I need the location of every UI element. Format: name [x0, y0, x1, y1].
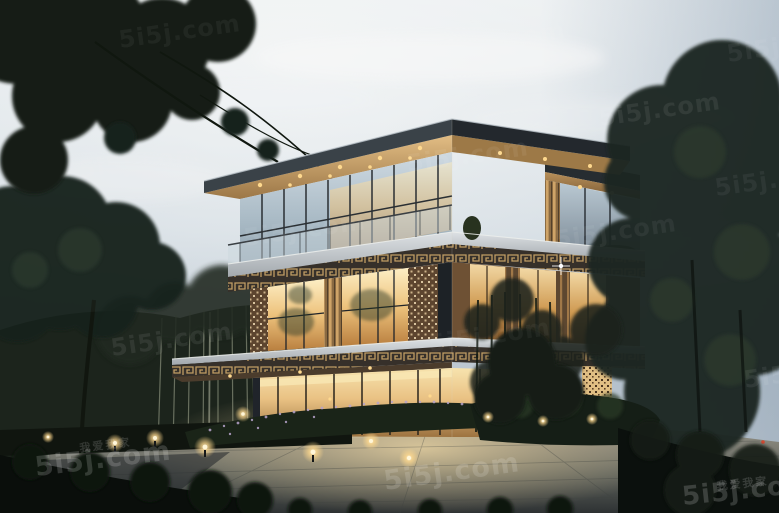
lattice-pillar — [250, 287, 268, 353]
downlight — [578, 185, 582, 189]
bollard-light — [302, 441, 324, 463]
bollard-light — [194, 436, 216, 458]
photo-canvas: 5i5j.com 5i5j.com 5i5j.com 5i5j.com 5i5j… — [0, 0, 779, 513]
bollard-light — [482, 411, 494, 423]
bollard-light — [586, 413, 598, 425]
bollard-light — [362, 432, 380, 450]
red-marker-light — [761, 440, 765, 444]
bollard-light — [235, 406, 251, 422]
slat-column — [324, 277, 342, 347]
villa-dusk-photo: 5i5j.com 5i5j.com 5i5j.com 5i5j.com 5i5j… — [0, 0, 779, 513]
deck-plant — [463, 216, 481, 240]
bollard-light — [537, 415, 549, 427]
bollard-light — [42, 431, 54, 443]
